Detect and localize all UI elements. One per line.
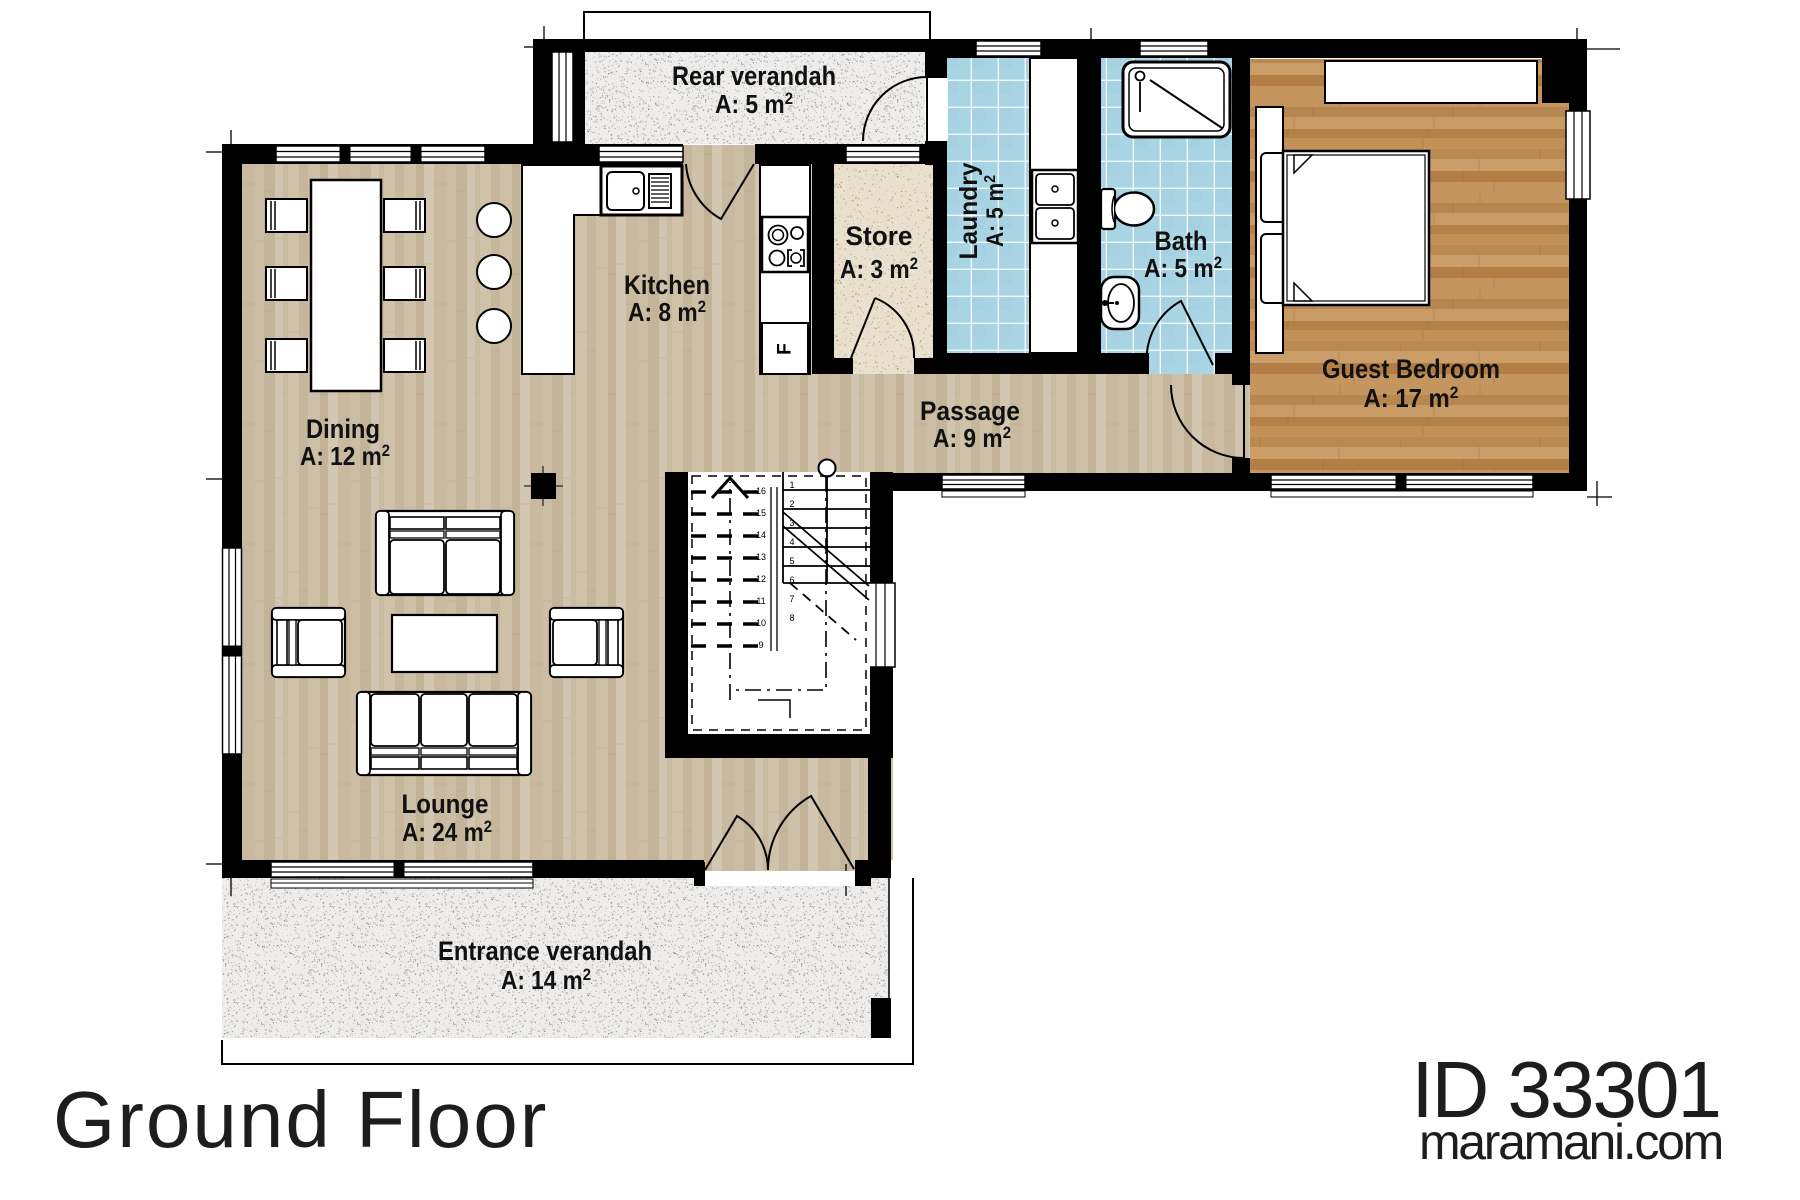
svg-text:Lounge: Lounge: [402, 789, 489, 819]
svg-text:13: 13: [756, 552, 766, 562]
svg-text:16: 16: [756, 486, 766, 496]
svg-text:6: 6: [789, 575, 794, 585]
svg-text:12: 12: [756, 574, 766, 584]
svg-text:A: 14 m2: A: 14 m2: [501, 965, 591, 995]
svg-text:A: 8 m2: A: 8 m2: [628, 297, 706, 327]
svg-text:maramani.com: maramani.com: [1419, 1114, 1722, 1170]
svg-text:F: F: [775, 343, 796, 355]
svg-text:A: 17 m2: A: 17 m2: [1364, 383, 1459, 413]
svg-text:Store: Store: [846, 221, 913, 251]
svg-text:Kitchen: Kitchen: [624, 270, 710, 300]
svg-text:A: 5 m2: A: 5 m2: [982, 175, 1009, 247]
svg-text:A: 9 m2: A: 9 m2: [933, 423, 1011, 453]
svg-text:14: 14: [756, 530, 766, 540]
svg-text:5: 5: [789, 556, 794, 566]
svg-text:11: 11: [756, 596, 765, 606]
svg-text:10: 10: [756, 618, 766, 628]
svg-text:8: 8: [789, 613, 794, 623]
svg-text:Laundry: Laundry: [955, 162, 983, 259]
svg-text:A: 12 m2: A: 12 m2: [300, 441, 390, 471]
svg-text:Rear verandah: Rear verandah: [672, 61, 836, 91]
svg-text:Passage: Passage: [920, 396, 1020, 426]
svg-text:1: 1: [789, 480, 794, 490]
svg-text:4: 4: [789, 537, 794, 547]
svg-text:Guest Bedroom: Guest Bedroom: [1322, 354, 1500, 384]
svg-text:7: 7: [789, 594, 794, 604]
svg-text:Dining: Dining: [306, 414, 380, 444]
svg-text:Entrance verandah: Entrance verandah: [438, 936, 652, 966]
svg-text:Ground Floor: Ground Floor: [53, 1075, 548, 1164]
svg-text:A: 24 m2: A: 24 m2: [402, 817, 492, 847]
svg-text:A: 5 m2: A: 5 m2: [715, 89, 793, 119]
svg-text:A: 5 m2: A: 5 m2: [1144, 253, 1222, 283]
svg-text:9: 9: [758, 640, 763, 650]
svg-text:2: 2: [789, 499, 794, 509]
svg-text:Bath: Bath: [1155, 226, 1208, 256]
svg-text:A: 3 m2: A: 3 m2: [840, 254, 918, 284]
svg-text:3: 3: [789, 518, 794, 528]
svg-text:15: 15: [756, 508, 766, 518]
